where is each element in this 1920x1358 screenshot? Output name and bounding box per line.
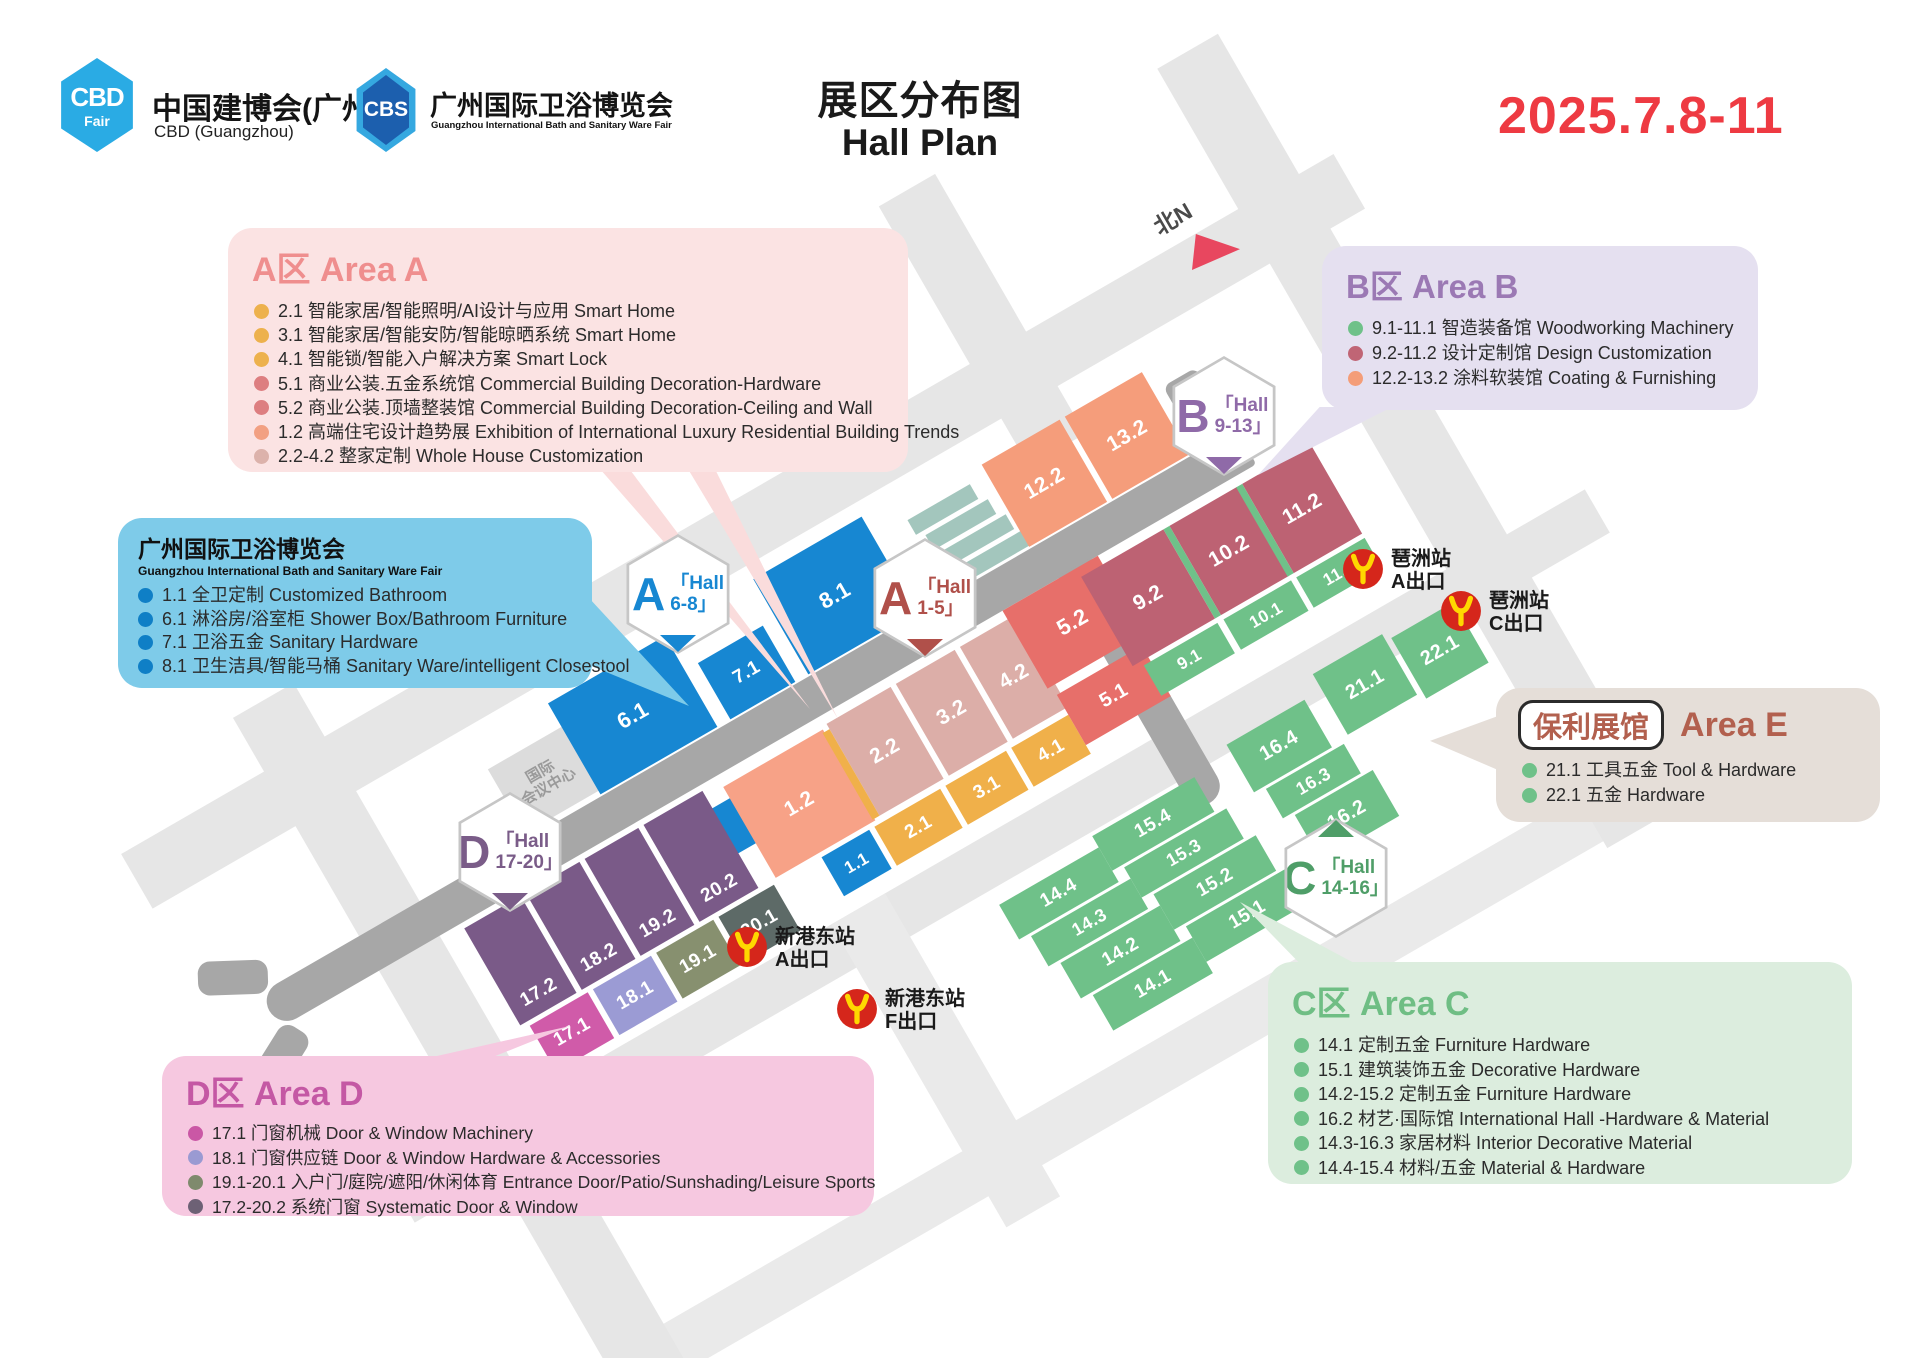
legend-text: 6.1 淋浴房/浴室柜 Shower Box/Bathroom Furnitur… — [162, 608, 567, 632]
legend-item: 16.2 材艺·国际馆 International Hall -Hardware… — [1294, 1107, 1834, 1132]
metro-icon — [1342, 548, 1384, 590]
legend-item: 2.1 智能家居/智能照明/AI设计与应用 Smart Home — [254, 299, 890, 323]
legend-item: 5.2 商业公装.顶墙整装馆 Commercial Building Decor… — [254, 396, 890, 420]
hall-badge-C-14-16: C「Hall14-16」 — [1280, 818, 1392, 938]
area-a-list: 2.1 智能家居/智能照明/AI设计与应用 Smart Home3.1 智能家居… — [228, 299, 908, 468]
legend-item: 12.2-13.2 涂料软装馆 Coating & Furnishing — [1348, 366, 1740, 391]
legend-text: 14.4-15.4 材料/五金 Material & Hardware — [1318, 1156, 1645, 1181]
hall-number-label: 9.2 — [1129, 580, 1168, 616]
hall-badge-letter: D — [457, 825, 490, 879]
hall-number-label: 1.2 — [780, 786, 819, 822]
metro-station-name: 琶洲站 — [1391, 548, 1451, 571]
metro-icon — [836, 988, 878, 1030]
hall-badge-range: 6-8」 — [670, 594, 724, 615]
metro-station-exit: A出口 — [775, 949, 855, 972]
hall-badge-text: 「Hall17-20」 — [495, 831, 563, 873]
callout-tail-area-e — [1430, 716, 1498, 770]
hall-badge-hall-word: 「Hall — [1321, 857, 1389, 878]
metro-station-exit: F出口 — [885, 1011, 965, 1034]
legend-dot — [1522, 788, 1537, 803]
legend-text: 5.1 商业公装.五金系统馆 Commercial Building Decor… — [278, 372, 821, 396]
legend-text: 9.1-11.1 智造装备馆 Woodworking Machinery — [1372, 316, 1733, 341]
hall-badge-B-9-13: B「Hall9-13」 — [1168, 356, 1280, 476]
metro-station-exit: C出口 — [1489, 613, 1549, 636]
hall-number-label: 18.1 — [613, 976, 658, 1015]
metro-station-name: 新港东站 — [775, 926, 855, 949]
hall-number-label: 20.2 — [697, 869, 742, 908]
legend-text: 1.2 高端住宅设计趋势展 Exhibition of Internationa… — [278, 420, 959, 444]
hall-badge-range: 17-20」 — [495, 852, 563, 873]
legend-dot — [1348, 346, 1363, 361]
legend-item: 19.1-20.1 入户门/庭院/遮阳/休闲体育 Entrance Door/P… — [188, 1170, 856, 1195]
legend-item: 14.4-15.4 材料/五金 Material & Hardware — [1294, 1156, 1834, 1181]
legend-text: 8.1 卫生洁具/智能马桶 Sanitary Ware/intelligent … — [162, 655, 630, 679]
legend-item: 3.1 智能家居/智能安防/智能晾晒系统 Smart Home — [254, 323, 890, 347]
area-e-title: Area E — [1680, 706, 1788, 745]
legend-item: 4.1 智能锁/智能入户解决方案 Smart Lock — [254, 347, 890, 371]
metro-station-3: 新港东站F出口 — [836, 988, 965, 1034]
hall-number-label: 4.2 — [995, 659, 1034, 695]
legend-item: 17.2-20.2 系统门窗 Systematic Door & Window — [188, 1195, 856, 1220]
legend-text: 12.2-13.2 涂料软装馆 Coating & Furnishing — [1372, 366, 1716, 391]
legend-dot — [254, 400, 269, 415]
legend-item: 17.1 门窗机械 Door & Window Machinery — [188, 1121, 856, 1146]
legend-item: 2.2-4.2 整家定制 Whole House Customization — [254, 444, 890, 468]
area-d-list: 17.1 门窗机械 Door & Window Machinery18.1 门窗… — [162, 1121, 874, 1219]
legend-text: 17.2-20.2 系统门窗 Systematic Door & Window — [212, 1195, 578, 1220]
legend-dot — [254, 449, 269, 464]
legend-item: 5.1 商业公装.五金系统馆 Commercial Building Decor… — [254, 372, 890, 396]
legend-text: 14.3-16.3 家居材料 Interior Decorative Mater… — [1318, 1131, 1692, 1156]
hall-badge-text: 「Hall14-16」 — [1321, 857, 1389, 899]
legend-text: 17.1 门窗机械 Door & Window Machinery — [212, 1121, 533, 1146]
legend-dot — [254, 376, 269, 391]
legend-dot — [254, 352, 269, 367]
legend-dot — [138, 588, 153, 603]
hall-number-label: 14.2 — [1098, 933, 1143, 972]
hall-badge-A-6-8: A「Hall6-8」 — [622, 534, 734, 654]
hall-badge-text: 「Hall6-8」 — [670, 573, 724, 615]
legend-text: 19.1-20.1 入户门/庭院/遮阳/休闲体育 Entrance Door/P… — [212, 1170, 875, 1195]
metro-station-name: 琶洲站 — [1489, 590, 1549, 613]
hall-badge-text: 「Hall1-5」 — [917, 577, 971, 619]
hall-number-label: 5.1 — [1095, 678, 1132, 713]
legend-item: 8.1 卫生洁具/智能马桶 Sanitary Ware/intelligent … — [138, 655, 574, 679]
bath-fair-list: 1.1 全卫定制 Customized Bathroom6.1 淋浴房/浴室柜 … — [118, 584, 592, 678]
legend-area-e: 保利展馆 Area E 21.1 工具五金 Tool & Hardware22.… — [1496, 688, 1880, 822]
hall-number-label: 17.2 — [517, 973, 562, 1012]
legend-text: 14.1 定制五金 Furniture Hardware — [1318, 1033, 1590, 1058]
hall-number-label: 16.4 — [1256, 726, 1303, 766]
hall-badge-hall-word: 「Hall — [917, 577, 971, 598]
hall-badge-letter: A — [632, 567, 665, 621]
legend-text: 2.2-4.2 整家定制 Whole House Customization — [278, 444, 643, 468]
hall-number-label: 3.2 — [932, 695, 971, 731]
legend-area-b: B区 Area B 9.1-11.1 智造装备馆 Woodworking Mac… — [1322, 246, 1758, 410]
metro-station-1: 琶洲站C出口 — [1440, 590, 1549, 636]
legend-item: 14.2-15.2 定制五金 Furniture Hardware — [1294, 1082, 1834, 1107]
hall-number-label: 9.1 — [1173, 644, 1205, 674]
legend-dot — [1294, 1111, 1309, 1126]
metro-station-label: 琶洲站C出口 — [1489, 590, 1549, 636]
hall-number-label: 13.2 — [1103, 414, 1152, 456]
legend-text: 21.1 工具五金 Tool & Hardware — [1546, 758, 1796, 783]
hall-badge-letter: C — [1283, 851, 1316, 905]
hall-number-label: 7.1 — [729, 656, 764, 689]
hall-number-label: 2.2 — [866, 733, 905, 769]
hall-badge-letter: A — [879, 571, 912, 625]
hall-number-label: 21.1 — [1341, 664, 1388, 704]
legend-text: 16.2 材艺·国际馆 International Hall -Hardware… — [1318, 1107, 1769, 1132]
legend-dot — [1522, 763, 1537, 778]
hall-number-label: 8.1 — [815, 576, 856, 615]
legend-item: 7.1 卫浴五金 Sanitary Hardware — [138, 631, 574, 655]
legend-item: 14.1 定制五金 Furniture Hardware — [1294, 1033, 1834, 1058]
legend-item: 15.1 建筑装饰五金 Decorative Hardware — [1294, 1058, 1834, 1083]
hall-badge-face: B「Hall9-13」 — [1171, 359, 1277, 473]
legend-dot — [1294, 1160, 1309, 1175]
hall-number-label: 3.1 — [969, 771, 1004, 804]
metro-station-label: 新港东站A出口 — [775, 926, 855, 972]
hall-number-label: 5.2 — [1052, 603, 1093, 642]
metro-station-0: 琶洲站A出口 — [1342, 548, 1451, 594]
bath-fair-subtitle: Guangzhou International Bath and Sanitar… — [138, 564, 592, 578]
legend-dot — [1294, 1038, 1309, 1053]
hall-number-label: 12.2 — [1020, 462, 1069, 504]
hall-badge-face: D「Hall17-20」 — [457, 795, 563, 909]
area-b-list: 9.1-11.1 智造装备馆 Woodworking Machinery9.2-… — [1322, 316, 1758, 391]
legend-text: 15.1 建筑装饰五金 Decorative Hardware — [1318, 1058, 1640, 1083]
legend-text: 22.1 五金 Hardware — [1546, 783, 1705, 808]
legend-item: 9.2-11.2 设计定制馆 Design Customization — [1348, 341, 1740, 366]
legend-item: 18.1 门窗供应链 Door & Window Hardware & Acce… — [188, 1146, 856, 1171]
hall-number-label: 15.3 — [1163, 835, 1206, 872]
legend-dot — [188, 1150, 203, 1165]
hall-number-label: 22.1 — [1416, 630, 1463, 670]
area-d-title: D区 Area D — [186, 1066, 874, 1115]
hall-badge-letter: B — [1176, 389, 1209, 443]
hall-number-label: 6.1 — [612, 696, 653, 735]
legend-dot — [1294, 1087, 1309, 1102]
legend-bath-fair: 广州国际卫浴博览会 Guangzhou International Bath a… — [118, 518, 592, 688]
area-b-title: B区 Area B — [1346, 260, 1758, 308]
hall-number-label: 14.4 — [1037, 874, 1082, 913]
hall-number-label: 4.1 — [1033, 734, 1068, 767]
legend-dot — [254, 425, 269, 440]
hall-number-label: 11.2 — [1278, 488, 1326, 530]
legend-text: 5.2 商业公装.顶墙整装馆 Commercial Building Decor… — [278, 396, 873, 420]
hall-badge-text: 「Hall9-13」 — [1215, 395, 1272, 437]
hall-number-label: 19.2 — [636, 905, 681, 944]
hall-number-label: 19.1 — [676, 940, 721, 979]
hall-badge-range: 1-5」 — [917, 598, 971, 619]
hall-badge-face: A「Hall1-5」 — [872, 541, 978, 655]
legend-item: 1.1 全卫定制 Customized Bathroom — [138, 584, 574, 608]
hall-number-label: 1.1 — [841, 848, 873, 878]
legend-item: 22.1 五金 Hardware — [1522, 783, 1862, 808]
legend-text: 4.1 智能锁/智能入户解决方案 Smart Lock — [278, 347, 607, 371]
legend-text: 7.1 卫浴五金 Sanitary Hardware — [162, 631, 418, 655]
hall-number-label: 15.4 — [1131, 805, 1176, 844]
hall-plan-poster: CBD Fair 中国建博会(广州) CBD (Guangzhou) CBS 广… — [0, 0, 1920, 1358]
metro-station-name: 新港东站 — [885, 988, 965, 1011]
hall-badge-range: 14-16」 — [1321, 878, 1389, 899]
legend-dot — [1294, 1136, 1309, 1151]
hall-badge-range: 9-13」 — [1215, 416, 1272, 437]
legend-dot — [188, 1199, 203, 1214]
metro-station-label: 琶洲站A出口 — [1391, 548, 1451, 594]
legend-dot — [254, 328, 269, 343]
metro-station-label: 新港东站F出口 — [885, 988, 965, 1034]
legend-dot — [1348, 371, 1363, 386]
legend-item: 14.3-16.3 家居材料 Interior Decorative Mater… — [1294, 1131, 1834, 1156]
legend-item: 6.1 淋浴房/浴室柜 Shower Box/Bathroom Furnitur… — [138, 608, 574, 632]
legend-text: 18.1 门窗供应链 Door & Window Hardware & Acce… — [212, 1146, 660, 1171]
legend-dot — [138, 659, 153, 674]
legend-text: 9.2-11.2 设计定制馆 Design Customization — [1372, 341, 1712, 366]
north-compass-label: 北N — [1146, 192, 1197, 241]
area-c-list: 14.1 定制五金 Furniture Hardware15.1 建筑装饰五金 … — [1268, 1033, 1852, 1180]
legend-area-d: D区 Area D 17.1 门窗机械 Door & Window Machin… — [162, 1056, 874, 1216]
legend-text: 1.1 全卫定制 Customized Bathroom — [162, 584, 447, 608]
area-e-header: 保利展馆 Area E — [1518, 700, 1880, 750]
legend-item: 9.1-11.1 智造装备馆 Woodworking Machinery — [1348, 316, 1740, 341]
metro-icon — [1440, 590, 1482, 632]
legend-dot — [138, 635, 153, 650]
hall-number-label: 2.1 — [901, 811, 936, 844]
hall-number-label: 10.1 — [1246, 598, 1286, 633]
hall-number-label: 16.3 — [1292, 763, 1335, 800]
legend-item: 1.2 高端住宅设计趋势展 Exhibition of Internationa… — [254, 420, 890, 444]
legend-text: 3.1 智能家居/智能安防/智能晾晒系统 Smart Home — [278, 323, 676, 347]
area-a-title: A区 Area A — [252, 242, 908, 291]
hall-number-label: 10.2 — [1204, 530, 1253, 572]
hall-number-label: 17.1 — [550, 1013, 595, 1052]
legend-dot — [1294, 1062, 1309, 1077]
legend-dot — [188, 1126, 203, 1141]
hall-badge-hall-word: 「Hall — [1215, 395, 1272, 416]
legend-dot — [254, 304, 269, 319]
hall-badge-D-17-20: D「Hall17-20」 — [454, 792, 566, 912]
legend-dot — [188, 1175, 203, 1190]
road-fork — [197, 960, 268, 996]
metro-station-2: 新港东站A出口 — [726, 926, 855, 972]
hall-badge-hall-word: 「Hall — [495, 831, 563, 852]
metro-icon — [726, 926, 768, 968]
hall-badge-face: C「Hall14-16」 — [1283, 821, 1389, 935]
area-e-venue-badge: 保利展馆 — [1518, 700, 1664, 750]
hall-number-label: 18.2 — [577, 939, 622, 978]
legend-dot — [1348, 321, 1363, 336]
legend-text: 14.2-15.2 定制五金 Furniture Hardware — [1318, 1082, 1631, 1107]
legend-area-a: A区 Area A 2.1 智能家居/智能照明/AI设计与应用 Smart Ho… — [228, 228, 908, 472]
hall-number-label: 15.2 — [1192, 863, 1237, 902]
area-e-list: 21.1 工具五金 Tool & Hardware22.1 五金 Hardwar… — [1496, 758, 1880, 808]
legend-dot — [138, 612, 153, 627]
legend-item: 21.1 工具五金 Tool & Hardware — [1522, 758, 1862, 783]
hall-badge-face: A「Hall6-8」 — [625, 537, 731, 651]
hall-badge-hall-word: 「Hall — [670, 573, 724, 594]
area-c-title: C区 Area C — [1292, 976, 1852, 1025]
hall-badge-A-1-5: A「Hall1-5」 — [869, 538, 981, 658]
bath-fair-title: 广州国际卫浴博览会 — [138, 530, 592, 564]
legend-text: 2.1 智能家居/智能照明/AI设计与应用 Smart Home — [278, 299, 675, 323]
legend-area-c: C区 Area C 14.1 定制五金 Furniture Hardware15… — [1268, 962, 1852, 1184]
hall-number-label: 14.1 — [1130, 965, 1175, 1004]
hall-number-label: 14.3 — [1068, 904, 1111, 941]
